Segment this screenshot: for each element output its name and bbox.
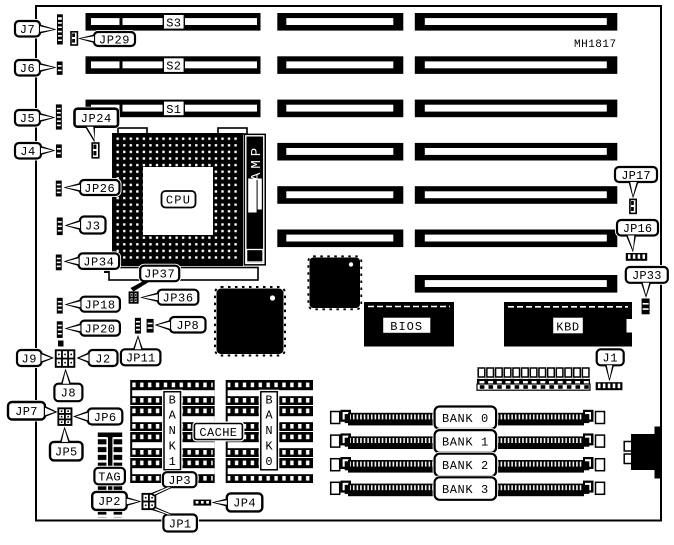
svg-text:N: N [169,424,176,438]
svg-text:BANK 1: BANK 1 [442,436,489,450]
svg-text:JP11: JP11 [126,352,156,366]
svg-text:J5: J5 [20,112,36,126]
svg-text:JP33: JP33 [632,269,662,283]
svg-text:JP16: JP16 [623,222,653,236]
svg-text:J7: J7 [20,23,36,37]
svg-text:JP26: JP26 [84,182,115,196]
svg-text:AMP: AMP [249,144,265,181]
svg-text:S2: S2 [166,60,181,74]
svg-text:J8: J8 [61,387,77,401]
svg-text:JP7: JP7 [15,405,38,419]
svg-text:JP37: JP37 [144,268,175,282]
svg-text:JP4: JP4 [233,497,256,511]
svg-text:J3: J3 [85,219,101,233]
svg-text:JP17: JP17 [621,169,651,183]
svg-text:N: N [265,424,272,438]
svg-text:TAG: TAG [98,470,121,484]
svg-text:B: B [169,393,176,407]
svg-text:JP1: JP1 [169,517,192,531]
svg-text:J2: J2 [95,352,111,366]
svg-text:J9: J9 [21,352,37,366]
svg-text:S3: S3 [166,16,181,30]
svg-text:JP24: JP24 [81,112,112,126]
svg-text:MH1817: MH1817 [574,39,617,51]
svg-text:1: 1 [169,455,176,469]
svg-text:JP3: JP3 [168,474,191,488]
svg-text:BANK 3: BANK 3 [442,483,489,497]
svg-text:BANK 0: BANK 0 [442,412,489,426]
svg-text:JP5: JP5 [55,445,78,459]
svg-text:0: 0 [265,455,272,469]
svg-text:S1: S1 [166,103,181,117]
svg-text:JP29: JP29 [99,33,130,47]
svg-text:JP20: JP20 [85,322,116,336]
svg-text:JP18: JP18 [85,298,116,312]
svg-text:CPU: CPU [166,194,191,208]
svg-text:J6: J6 [20,62,36,76]
svg-text:BIOS: BIOS [390,320,423,334]
svg-text:JP8: JP8 [176,319,199,333]
svg-text:JP2: JP2 [98,495,121,509]
svg-text:K: K [169,440,177,454]
svg-text:JP34: JP34 [83,255,114,269]
svg-text:A: A [169,409,177,423]
svg-text:J4: J4 [20,145,36,159]
svg-text:J1: J1 [602,352,618,366]
svg-text:KBD: KBD [556,320,579,334]
svg-text:BANK 2: BANK 2 [442,459,489,473]
svg-text:JP36: JP36 [162,291,193,305]
svg-text:CACHE: CACHE [199,426,237,440]
svg-text:B: B [265,393,272,407]
svg-text:JP6: JP6 [94,411,117,425]
svg-text:A: A [265,409,273,423]
svg-text:K: K [265,440,273,454]
